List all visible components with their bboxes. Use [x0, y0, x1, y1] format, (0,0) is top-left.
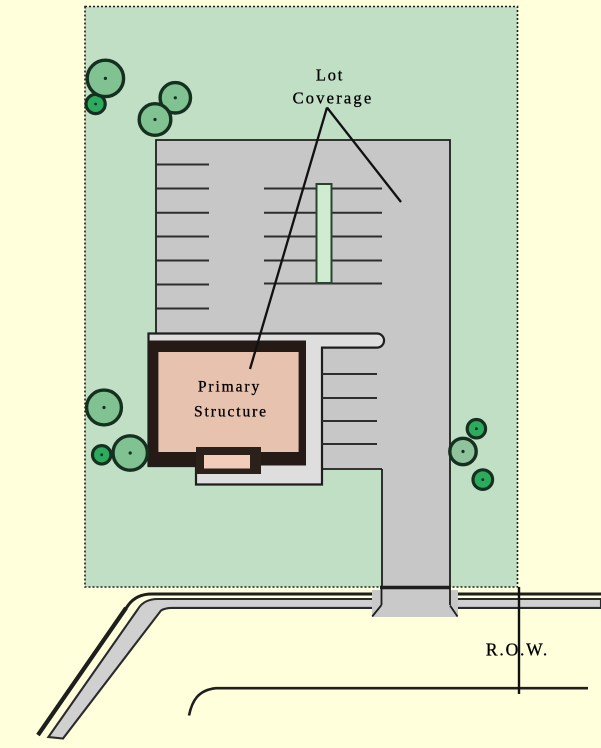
svg-text:Primary: Primary — [198, 379, 261, 396]
svg-text:Coverage: Coverage — [293, 89, 374, 108]
svg-text:Lot: Lot — [316, 66, 344, 85]
svg-text:R.O.W.: R.O.W. — [486, 640, 549, 660]
svg-text:Structure: Structure — [194, 404, 268, 421]
